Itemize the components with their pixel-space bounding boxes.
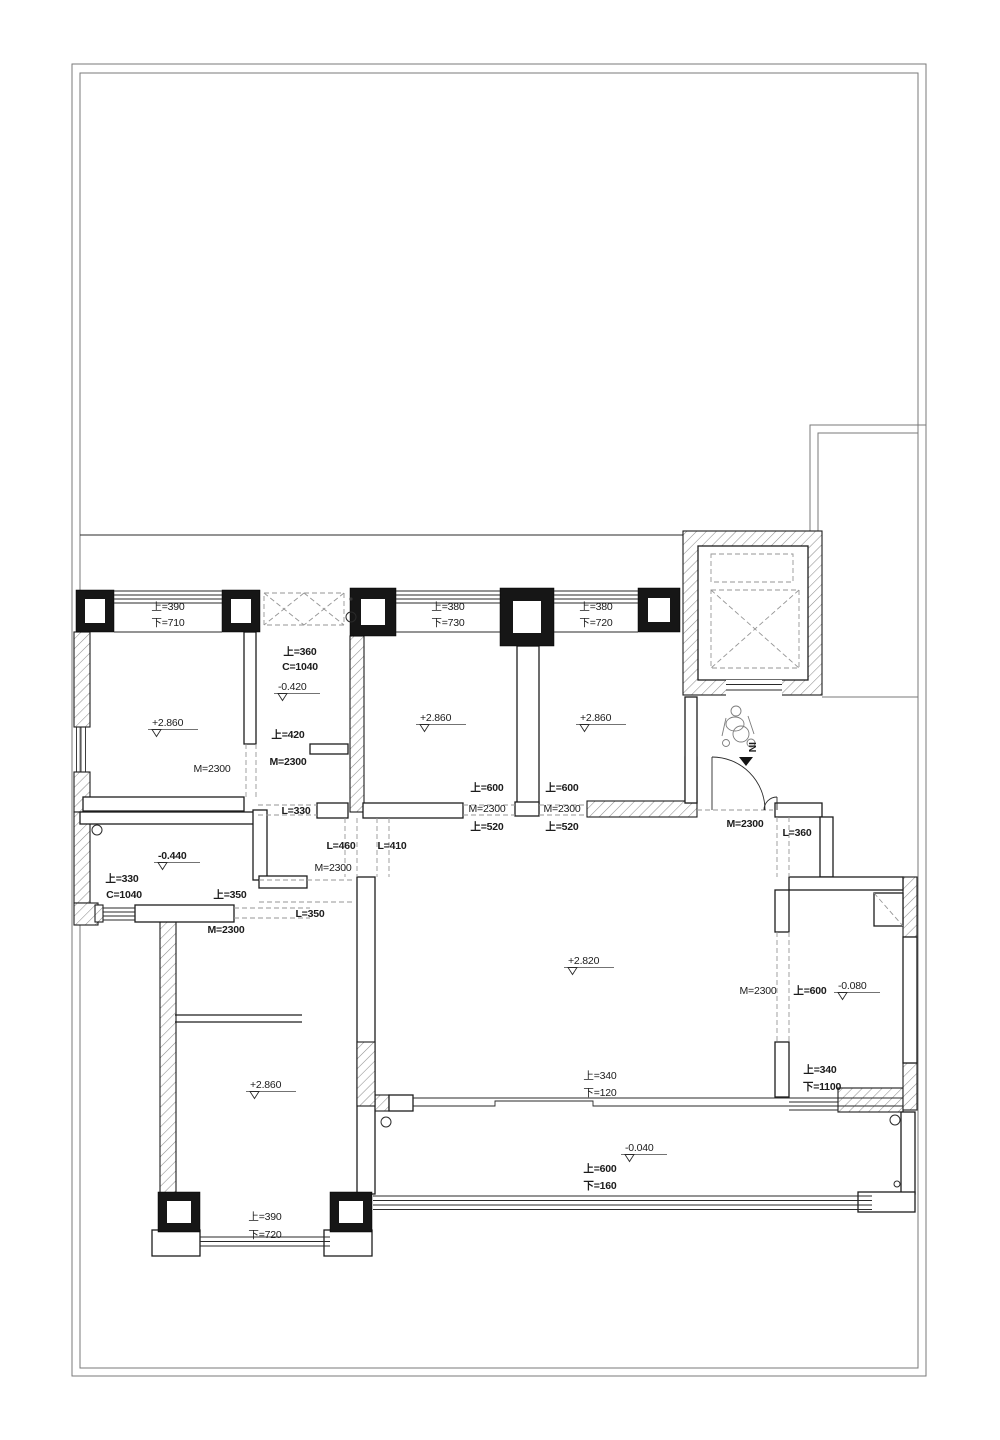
elevation-value: +2.860 — [580, 712, 612, 724]
label-l460: L=460 — [326, 840, 355, 852]
label-bath-c: C=1040 — [106, 889, 142, 901]
in-label: IN — [746, 742, 758, 752]
column — [638, 588, 680, 632]
person-figure — [722, 706, 755, 747]
label-kitchen-win-dn: 下=1100 — [803, 1081, 842, 1093]
label-doorD-m: M=2300 — [543, 803, 580, 815]
window-balcony-south — [373, 1196, 872, 1210]
label-doorD-dn: 上=520 — [545, 820, 579, 833]
elevation-roomD: +2.860 — [576, 712, 626, 732]
dot — [349, 597, 352, 600]
elevation-value: -0.440 — [158, 850, 187, 862]
elevation-value: -0.420 — [278, 681, 307, 693]
wall-kitchen-east-bot — [903, 1063, 917, 1110]
label-window-s-top: 上=390 — [248, 1211, 282, 1223]
wall-west-bath — [74, 812, 90, 903]
wall-bath-east — [253, 810, 267, 880]
entry-arrow-icon — [739, 757, 753, 766]
wall-kitchen-west-top — [775, 890, 789, 932]
label-bath-up: 上=330 — [105, 872, 139, 885]
wall-balcony-east — [901, 1112, 915, 1194]
elevation-markers: +2.860 +2.860 +2.860 -0.420 -0.440 +2.82… — [148, 681, 880, 1162]
label-l360: L=360 — [782, 827, 811, 839]
wall-bath-south — [135, 905, 234, 922]
wall-entry-west — [685, 697, 697, 803]
wall-kitchen-west-bot — [775, 1042, 789, 1097]
elevation-balcony: -0.040 — [621, 1142, 667, 1162]
label-doorC-up: 上=600 — [470, 781, 504, 794]
label-closet-door: M=2300 — [269, 756, 306, 768]
label-window-s-bot: 下=720 — [248, 1229, 282, 1241]
label-kitchen-up600: 上=600 — [793, 984, 827, 997]
label-window-n2-top: 上=380 — [431, 601, 465, 613]
label-window-n1-top: 上=390 — [151, 601, 185, 613]
label-kitchen-win-up: 上=340 — [803, 1063, 837, 1076]
floor-plan-drawing: IN +2.860 +2.860 +2.860 -0.420 -0.440 — [0, 0, 1000, 1440]
elevation-bath: -0.440 — [154, 850, 200, 870]
wall-corridor-south — [587, 801, 697, 817]
wall-roomA-south — [83, 797, 244, 811]
elevation-value: +2.820 — [568, 955, 600, 967]
column-foot-sw — [152, 1230, 200, 1256]
label-window-n2-bot: 下=730 — [431, 617, 465, 629]
column — [222, 590, 260, 632]
wall-west-upper — [74, 632, 90, 727]
drain-circle — [894, 1181, 900, 1187]
label-roomA-door: M=2300 — [193, 763, 230, 775]
wall-kitchen-east-top — [903, 877, 917, 937]
wall-bath-north — [80, 812, 258, 824]
elevation-value: +2.860 — [152, 717, 184, 729]
wall-closet2-east — [820, 817, 833, 877]
elevation-blroom: +2.860 — [246, 1079, 296, 1099]
elevation-value: -0.040 — [625, 1142, 654, 1154]
elevation-roomC: +2.860 — [416, 712, 466, 732]
label-closet-up: 上=360 — [283, 645, 317, 658]
drain-circle — [92, 825, 102, 835]
elevation-roomA: +2.860 — [148, 717, 198, 737]
floor-plan-sheet: IN +2.860 +2.860 +2.860 -0.420 -0.440 — [0, 0, 1000, 1440]
column — [158, 1192, 200, 1232]
label-balcony-win-up: 上=600 — [583, 1162, 617, 1175]
wall-kitchen-south — [838, 1088, 903, 1112]
wall-corridor-2 — [363, 803, 463, 818]
label-doorC-dn: 上=520 — [470, 820, 504, 833]
wall-roomC-foot — [515, 802, 539, 816]
elevation-value: +2.860 — [420, 712, 452, 724]
wall-closet2-north — [775, 803, 822, 817]
label-window-n3-bot: 下=720 — [579, 617, 613, 629]
wall-kitchen-east — [903, 937, 917, 1063]
elevation-value: -0.080 — [838, 980, 867, 992]
kitchen-flue — [874, 893, 903, 926]
walls — [80, 632, 917, 1256]
column — [350, 588, 396, 636]
wall-roomC-east — [517, 646, 539, 804]
label-balcony-door-up: 上=340 — [583, 1070, 617, 1082]
label-entry-door: M=2300 — [726, 818, 763, 830]
wall-corridor-1 — [317, 803, 348, 818]
label-l330: L=330 — [281, 805, 310, 817]
label-window-n3-top: 上=380 — [579, 601, 613, 613]
partition-blroom — [175, 1015, 302, 1022]
wall-balcony-nw — [389, 1095, 413, 1111]
label-up350: 上=350 — [213, 888, 247, 901]
label-balcony-door-dn: 下=120 — [583, 1087, 617, 1099]
wall-blroom-west — [160, 922, 176, 1194]
wall-closet-stub — [310, 744, 348, 754]
site-boundary — [72, 64, 926, 1376]
column-foot-se — [324, 1230, 372, 1256]
wall-west-corner — [74, 903, 98, 925]
elevation-kitchen: -0.080 — [834, 980, 880, 1000]
wall-balcony-se-foot — [858, 1192, 915, 1212]
label-balcony-win-dn: 下=160 — [583, 1180, 617, 1192]
drain-circle — [381, 1117, 391, 1127]
label-kitchen-door: M=2300 — [739, 985, 776, 997]
column — [500, 588, 554, 646]
drain-circle — [890, 1115, 900, 1125]
label-window-n1-bot: 下=710 — [151, 617, 185, 629]
wall-divider-bc — [350, 636, 364, 812]
wall-roomA-east — [244, 632, 256, 744]
entry-in-marker: IN — [739, 742, 758, 766]
wall-kitchen-north — [789, 877, 903, 890]
ac-platform — [264, 593, 356, 625]
label-l410: L=410 — [377, 840, 406, 852]
window-kitchen-south — [789, 1098, 838, 1110]
label-closet-c: C=1040 — [282, 661, 318, 673]
label-up420: 上=420 — [271, 728, 305, 741]
elevation-closet: -0.420 — [274, 681, 320, 701]
label-l350: L=350 — [295, 908, 324, 920]
column — [330, 1192, 372, 1232]
column — [76, 590, 114, 632]
window-bath-south — [95, 905, 135, 922]
entry-door — [712, 757, 777, 810]
elevation-value: +2.860 — [250, 1079, 282, 1091]
label-bath-door: M=2300 — [207, 924, 244, 936]
wall-blroom-east — [357, 877, 375, 1194]
wall-bath-stub — [259, 876, 307, 888]
drains — [92, 825, 900, 1187]
elevation-living: +2.820 — [564, 955, 614, 975]
wall-blroom-east-hatch — [357, 1042, 375, 1106]
label-doorC-m: M=2300 — [468, 803, 505, 815]
label-hall-door: M=2300 — [314, 862, 351, 874]
elevator-shaft — [683, 531, 822, 696]
window-west-roomA — [77, 727, 86, 772]
label-doorD-up: 上=600 — [545, 781, 579, 794]
